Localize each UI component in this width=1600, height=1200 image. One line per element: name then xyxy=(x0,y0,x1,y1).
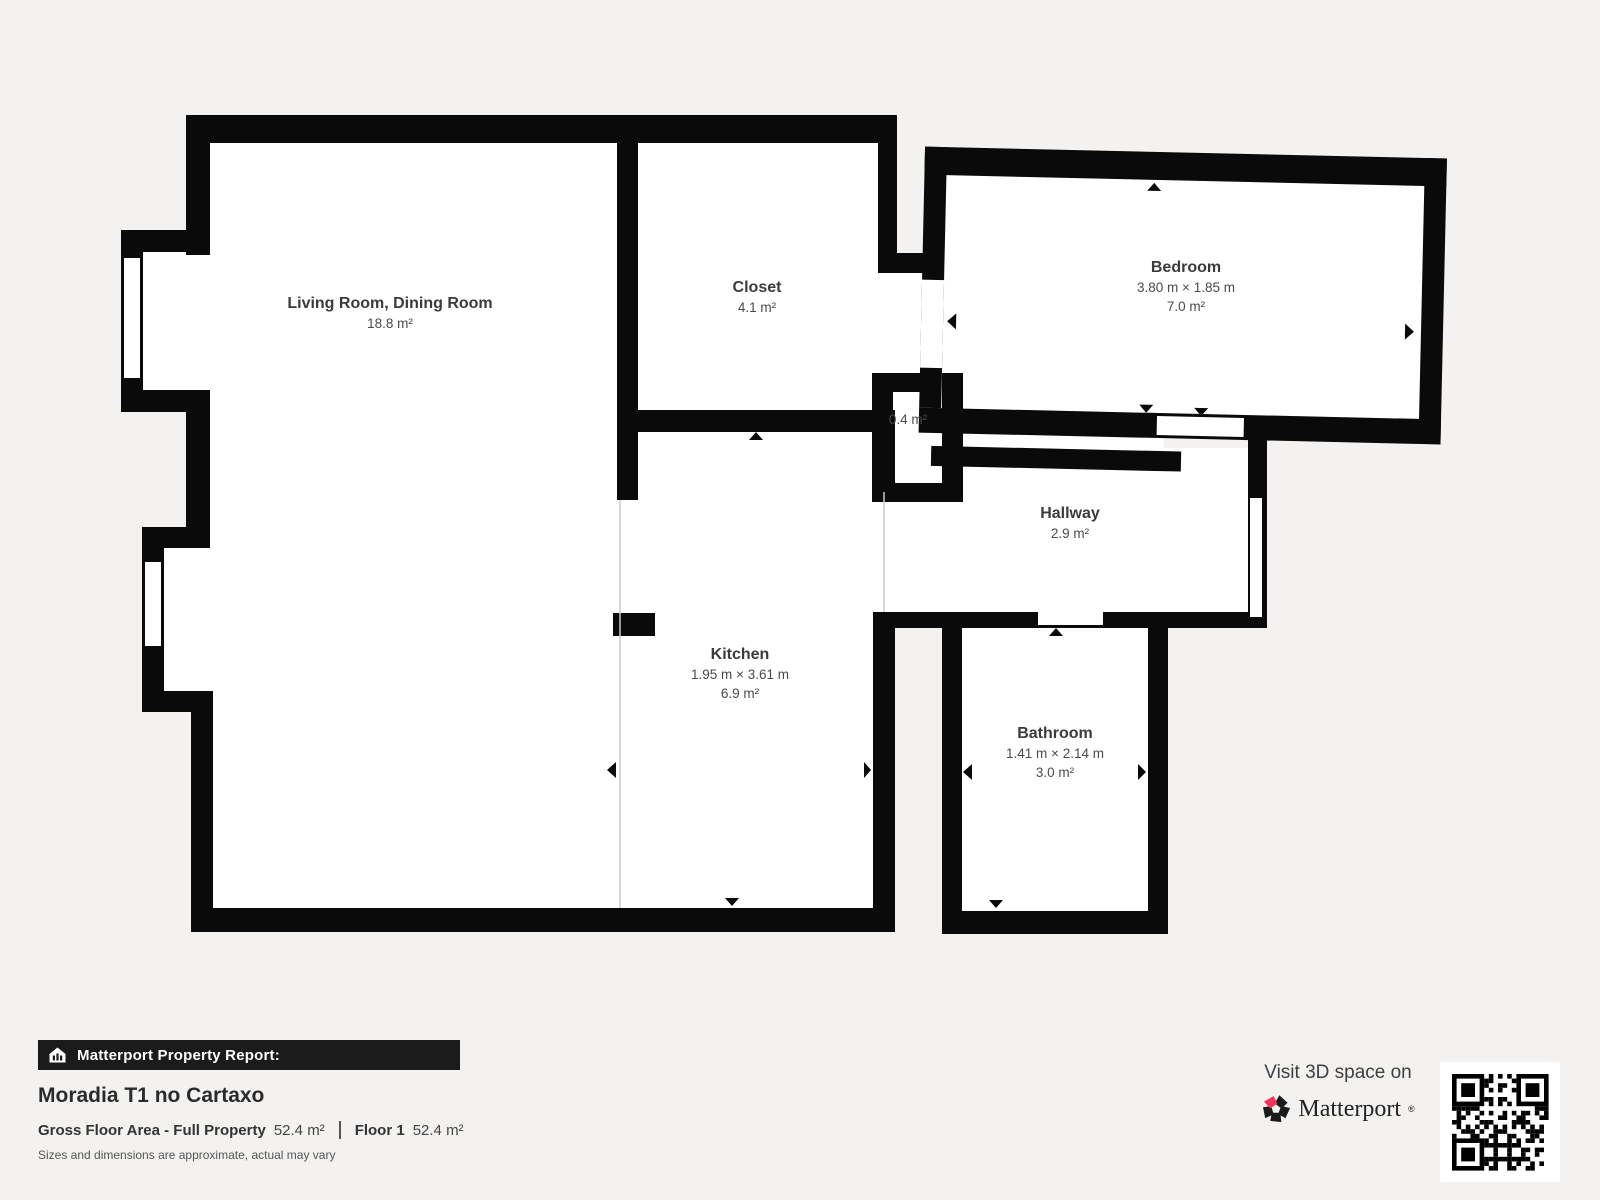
matterport-wordmark: Matterport xyxy=(1298,1096,1401,1123)
matterport-brand: Matterport ® xyxy=(1253,1094,1423,1124)
gross-floor-area-label: Gross Floor Area - Full Property xyxy=(38,1122,266,1139)
room-area: 3.0 m² xyxy=(1006,763,1104,782)
floor-value: 52.4 m² xyxy=(413,1122,464,1139)
room-area: 18.8 m² xyxy=(287,314,492,333)
room-name: Hallway xyxy=(1040,504,1100,524)
room-label-small-closet: 0.4 m² xyxy=(889,410,927,429)
visit-3d-text: Visit 3D space on xyxy=(1253,1062,1423,1084)
room-area: 0.4 m² xyxy=(889,410,927,429)
room-dimensions: 1.95 m × 3.61 m xyxy=(691,665,789,684)
room-area: 4.1 m² xyxy=(733,298,782,317)
property-report-page: Living Room, Dining Room 18.8 m² Closet … xyxy=(0,0,1600,1200)
room-label-hallway: Hallway 2.9 m² xyxy=(1040,504,1100,543)
report-footer: Matterport Property Report: Moradia T1 n… xyxy=(38,1040,464,1162)
room-dimensions: 1.41 m × 2.14 m xyxy=(1006,744,1104,763)
room-area: 6.9 m² xyxy=(691,684,789,703)
room-name: Kitchen xyxy=(691,645,789,665)
window xyxy=(124,258,140,378)
room-label-bedroom: Bedroom 3.80 m × 1.85 m 7.0 m² xyxy=(1137,258,1235,316)
window xyxy=(1250,498,1262,617)
gross-floor-area-value: 52.4 m² xyxy=(274,1122,325,1139)
room-area: 2.9 m² xyxy=(1040,524,1100,543)
trademark-mark: ® xyxy=(1408,1104,1415,1114)
room-label-kitchen: Kitchen 1.95 m × 3.61 m 6.9 m² xyxy=(691,645,789,703)
house-chart-icon xyxy=(48,1046,67,1064)
qr-code xyxy=(1440,1062,1560,1182)
disclaimer-text: Sizes and dimensions are approximate, ac… xyxy=(38,1148,464,1162)
floorplan xyxy=(0,0,1600,1200)
room-name: Living Room, Dining Room xyxy=(287,294,492,314)
area-summary: Gross Floor Area - Full Property 52.4 m²… xyxy=(38,1121,464,1139)
room-name: Bathroom xyxy=(1006,724,1104,744)
room-label-closet: Closet 4.1 m² xyxy=(733,278,782,317)
room-dimensions: 3.80 m × 1.85 m xyxy=(1137,278,1235,297)
report-badge-label: Matterport Property Report: xyxy=(77,1047,280,1064)
room-name: Closet xyxy=(733,278,782,298)
room-label-bathroom: Bathroom 1.41 m × 2.14 m 3.0 m² xyxy=(1006,724,1104,782)
window xyxy=(145,562,161,646)
room-area: 7.0 m² xyxy=(1137,297,1235,316)
bathroom-door-opening xyxy=(1038,612,1103,625)
room-name: Bedroom xyxy=(1137,258,1235,278)
report-badge: Matterport Property Report: xyxy=(38,1040,460,1070)
matterport-logo-icon xyxy=(1261,1094,1291,1124)
divider xyxy=(339,1121,341,1139)
floor-label: Floor 1 xyxy=(355,1122,405,1139)
property-title: Moradia T1 no Cartaxo xyxy=(38,1084,464,1108)
matterport-promo: Visit 3D space on Matterport ® xyxy=(1253,1062,1423,1124)
room-label-living: Living Room, Dining Room 18.8 m² xyxy=(287,294,492,333)
